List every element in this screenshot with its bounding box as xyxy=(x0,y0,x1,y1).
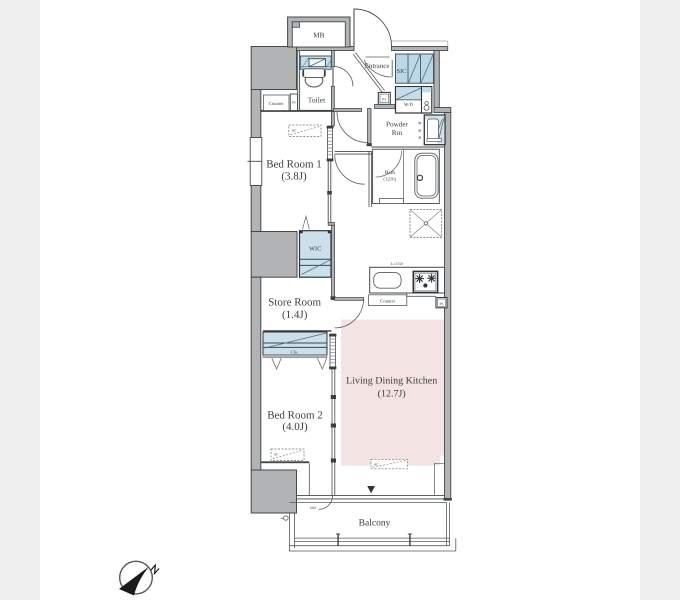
svg-text:AC: AC xyxy=(274,453,280,457)
svg-text:SIC: SIC xyxy=(397,68,407,75)
svg-text:L=2550: L=2550 xyxy=(391,262,403,266)
svg-text:(4.0J): (4.0J) xyxy=(282,421,308,433)
svg-text:Bed Room 2: Bed Room 2 xyxy=(267,410,323,422)
svg-text:Balcony: Balcony xyxy=(359,519,391,529)
svg-text:Powder: Powder xyxy=(386,120,409,128)
svg-text:Rm: Rm xyxy=(392,129,403,137)
svg-text:(3.8J): (3.8J) xyxy=(281,171,307,183)
svg-text:AC: AC xyxy=(374,462,380,466)
svg-text:(12.7J): (12.7J) xyxy=(378,389,406,400)
svg-text:Counter: Counter xyxy=(269,101,285,107)
svg-text:Counter: Counter xyxy=(380,299,396,305)
svg-text:PS: PS xyxy=(292,101,296,105)
svg-text:AC: AC xyxy=(292,129,298,133)
svg-text:Store Room: Store Room xyxy=(268,297,321,309)
svg-text:1801: 1801 xyxy=(309,506,316,510)
svg-text:Toilet: Toilet xyxy=(308,96,326,105)
svg-text:Bath: Bath xyxy=(385,170,395,176)
svg-text:Living Dining Kitchen: Living Dining Kitchen xyxy=(346,376,437,387)
svg-text:W/D: W/D xyxy=(404,102,414,108)
svg-text:PS: PS xyxy=(440,302,444,306)
svg-text:Bed Room 1: Bed Room 1 xyxy=(266,159,322,171)
svg-text:(1216): (1216) xyxy=(383,177,396,183)
svg-text:(1.4J): (1.4J) xyxy=(282,309,308,321)
svg-text:PS: PS xyxy=(382,98,386,102)
svg-text:WIC: WIC xyxy=(309,246,321,253)
svg-text:Clo.: Clo. xyxy=(291,350,299,355)
svg-text:MB: MB xyxy=(313,32,324,40)
